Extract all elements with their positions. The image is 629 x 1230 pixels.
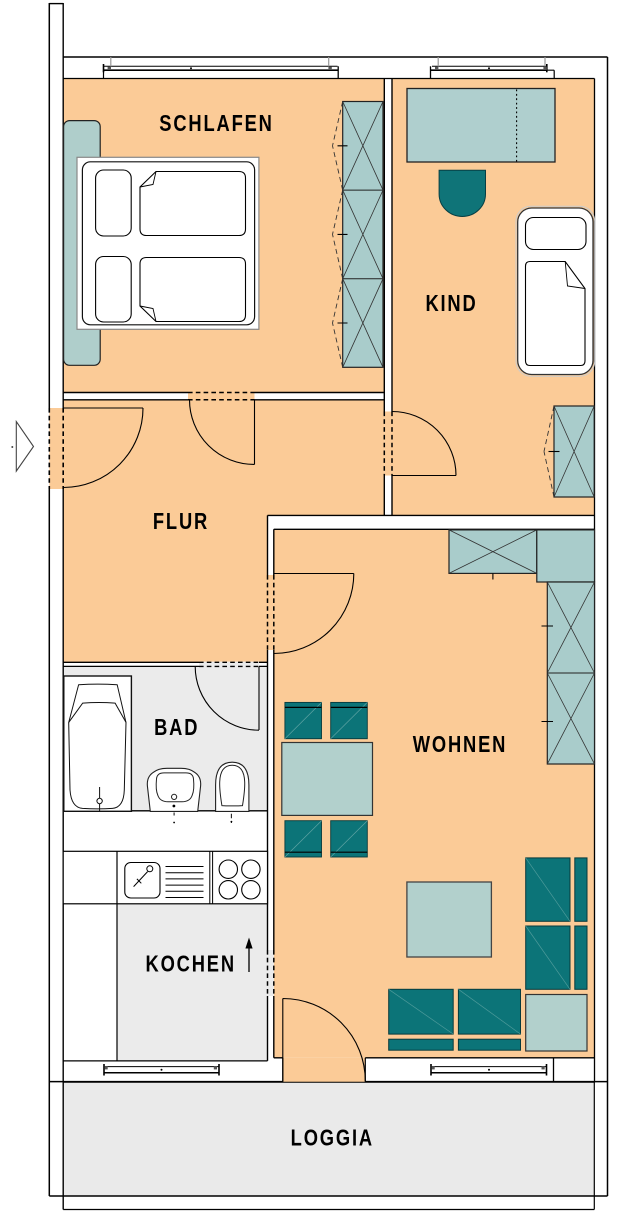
svg-text:KOCHEN: KOCHEN <box>146 951 236 977</box>
svg-text:BAD: BAD <box>154 715 199 741</box>
svg-text:LOGGIA: LOGGIA <box>291 1125 374 1151</box>
svg-text:FLUR: FLUR <box>153 509 209 535</box>
svg-text:KIND: KIND <box>425 291 477 317</box>
svg-text:SCHLAFEN: SCHLAFEN <box>159 111 273 137</box>
svg-text:WOHNEN: WOHNEN <box>413 732 507 758</box>
